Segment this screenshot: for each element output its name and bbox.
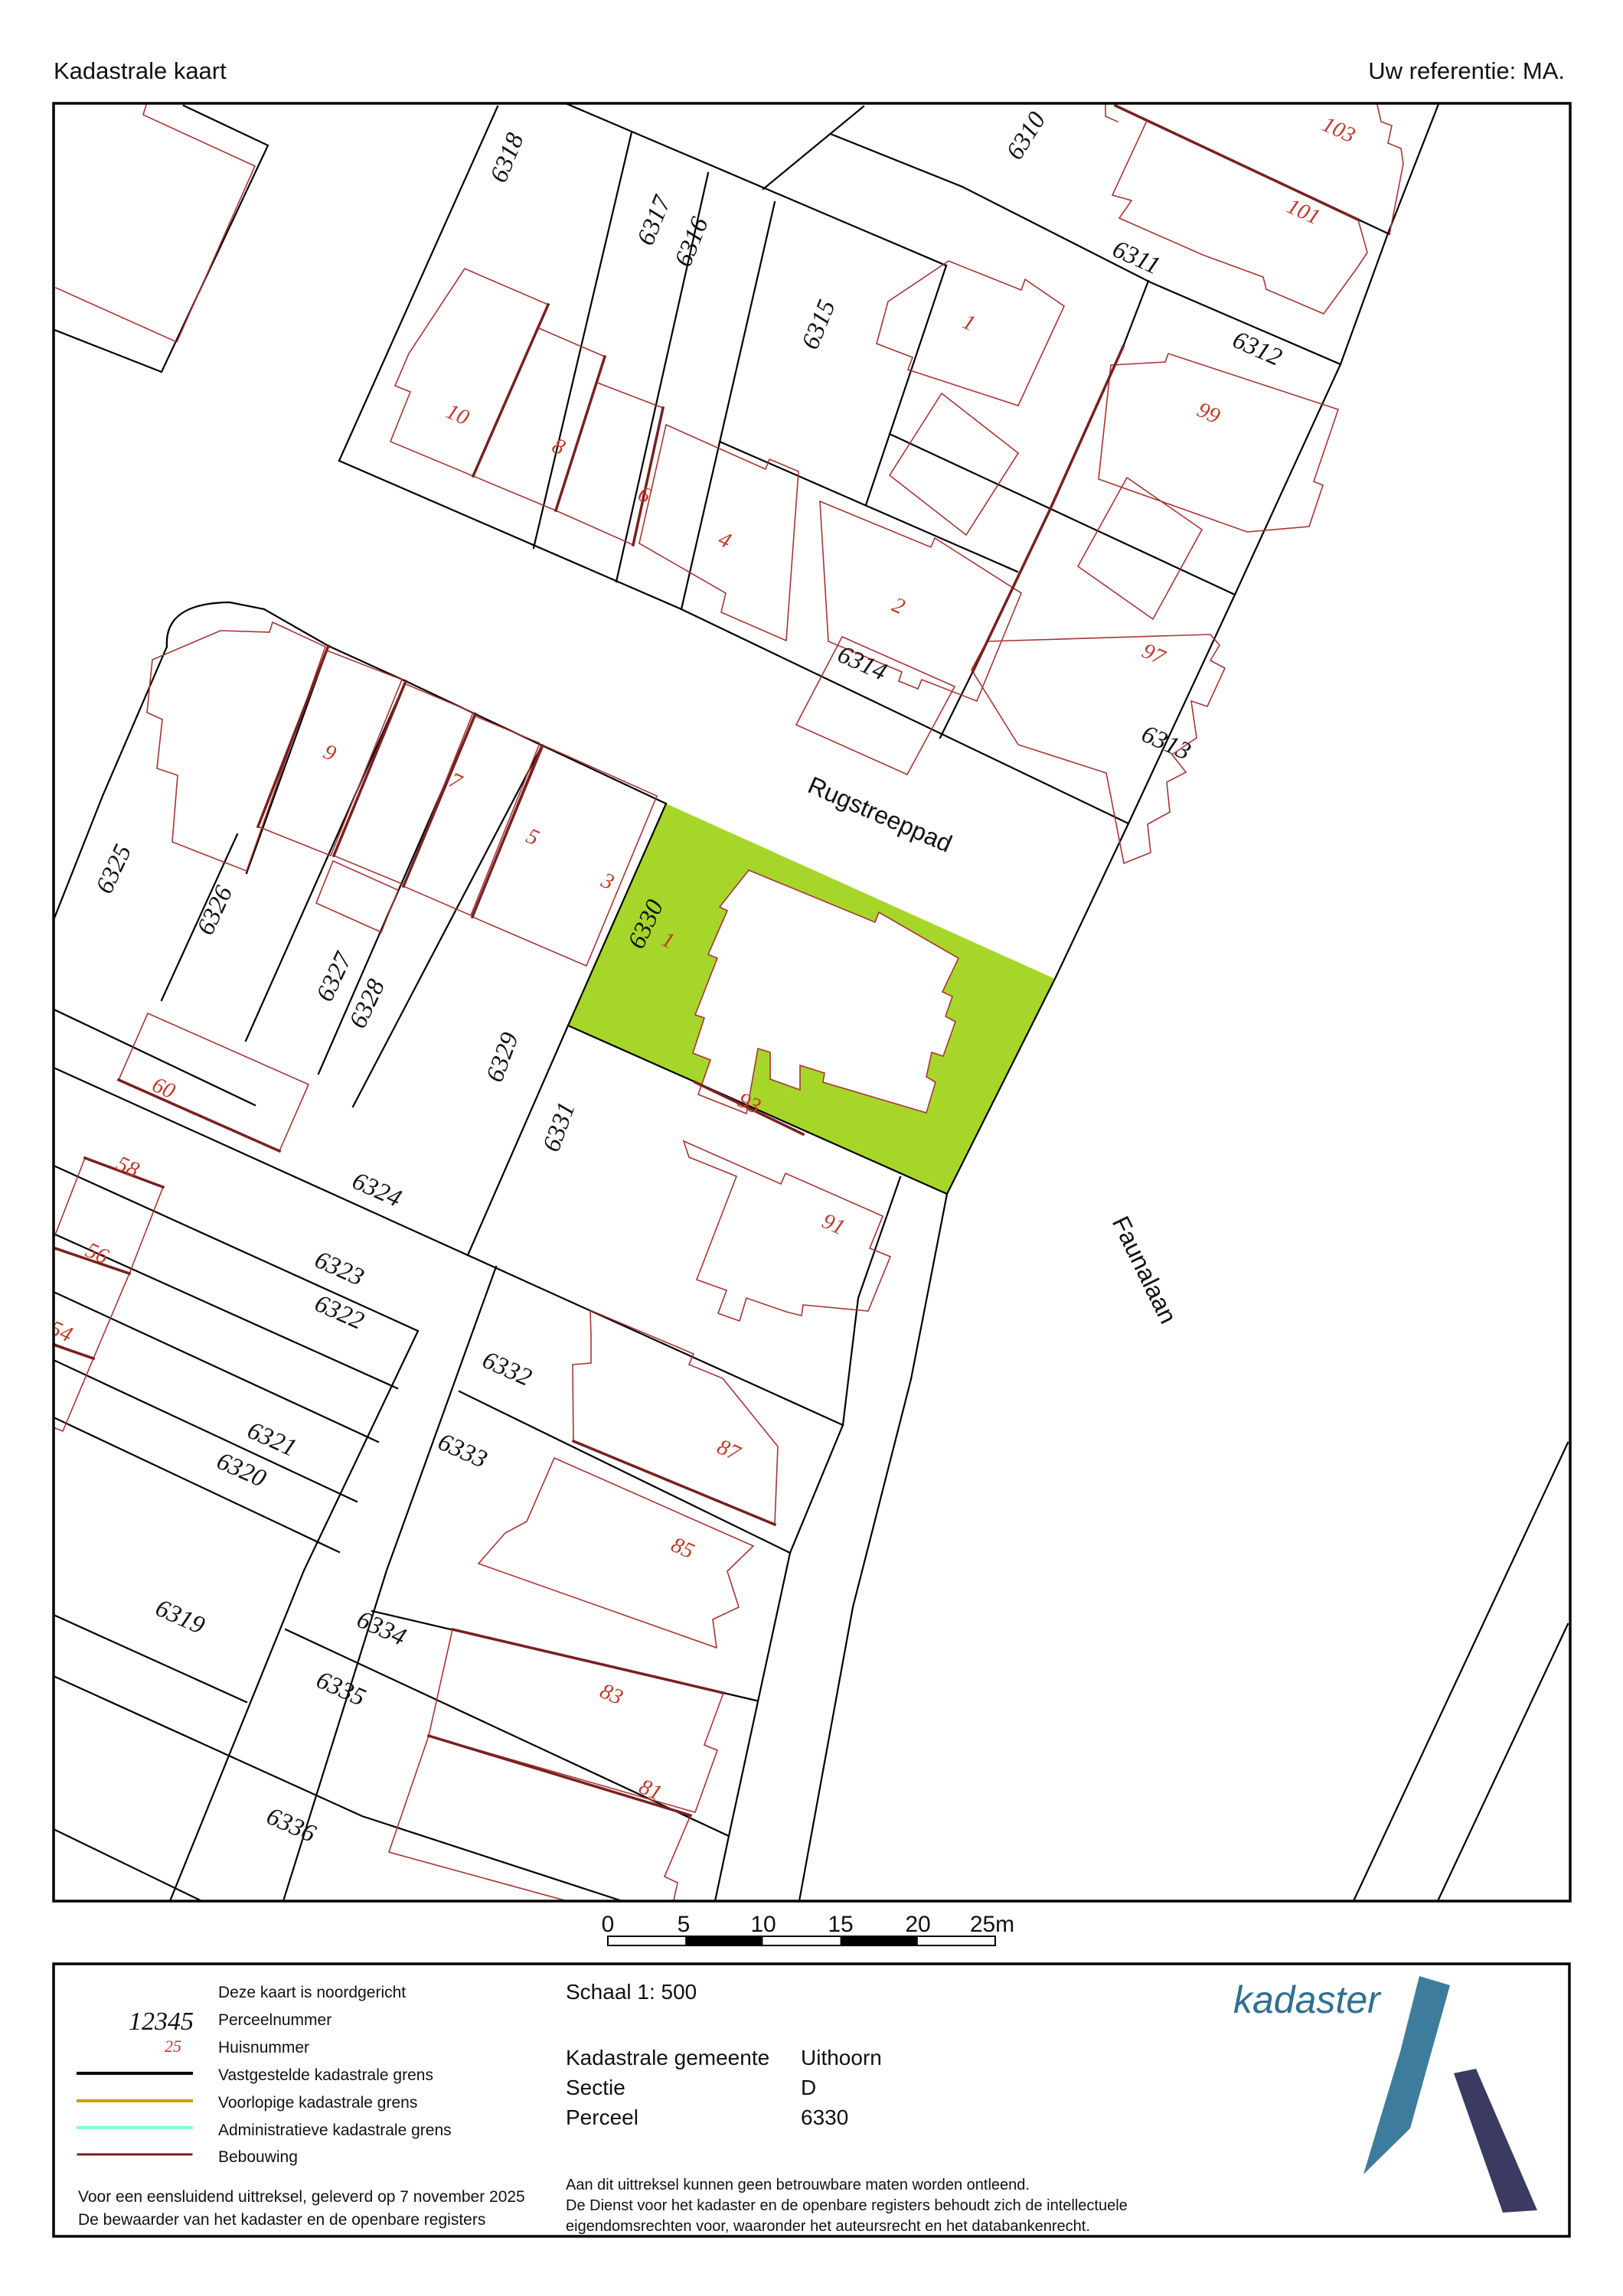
svg-text:12345: 12345 bbox=[129, 2007, 194, 2036]
svg-text:20: 20 bbox=[905, 1912, 930, 1937]
svg-text:Uithoorn: Uithoorn bbox=[801, 2046, 882, 2069]
svg-text:Sectie: Sectie bbox=[566, 2076, 625, 2099]
svg-text:Voorlopige kadastrale grens: Voorlopige kadastrale grens bbox=[218, 2094, 417, 2112]
svg-text:Uw referentie: MA.: Uw referentie: MA. bbox=[1368, 57, 1565, 84]
svg-text:Kadastrale gemeente: Kadastrale gemeente bbox=[566, 2046, 769, 2069]
svg-text:Huisnummer: Huisnummer bbox=[218, 2039, 309, 2056]
svg-text:eigendomsrechten voor, waarond: eigendomsrechten voor, waaronder het aut… bbox=[566, 2218, 1090, 2235]
svg-text:D: D bbox=[801, 2076, 816, 2099]
svg-text:25: 25 bbox=[165, 2037, 181, 2056]
svg-text:10: 10 bbox=[750, 1912, 776, 1937]
svg-text:Bebouwing: Bebouwing bbox=[218, 2148, 298, 2166]
svg-text:Deze kaart is noordgericht: Deze kaart is noordgericht bbox=[218, 1984, 406, 2001]
svg-text:Perceelnummer: Perceelnummer bbox=[218, 2011, 331, 2029]
svg-text:Voor een eensluidend uittrekse: Voor een eensluidend uittreksel, gelever… bbox=[78, 2188, 525, 2206]
svg-text:15: 15 bbox=[828, 1912, 853, 1937]
svg-text:Vastgestelde kadastrale grens: Vastgestelde kadastrale grens bbox=[218, 2066, 433, 2084]
svg-text:Perceel: Perceel bbox=[566, 2105, 638, 2129]
svg-text:De bewaarder van het kadaster: De bewaarder van het kadaster en de open… bbox=[78, 2211, 485, 2229]
svg-text:Aan dit uittreksel kunnen geen: Aan dit uittreksel kunnen geen betrouwba… bbox=[566, 2177, 1030, 2193]
svg-text:5: 5 bbox=[678, 1912, 691, 1937]
svg-text:Kadastrale kaart: Kadastrale kaart bbox=[54, 57, 227, 84]
svg-text:kadaster: kadaster bbox=[1233, 1978, 1382, 2021]
svg-text:Schaal 1: 500: Schaal 1: 500 bbox=[566, 1980, 697, 2004]
svg-text:Administratieve kadastrale gre: Administratieve kadastrale grens bbox=[218, 2122, 452, 2139]
svg-text:De Dienst voor het kadaster en: De Dienst voor het kadaster en de openba… bbox=[566, 2197, 1128, 2214]
svg-text:6330: 6330 bbox=[801, 2105, 848, 2129]
svg-text:0: 0 bbox=[602, 1912, 615, 1937]
svg-text:25m: 25m bbox=[970, 1912, 1014, 1937]
